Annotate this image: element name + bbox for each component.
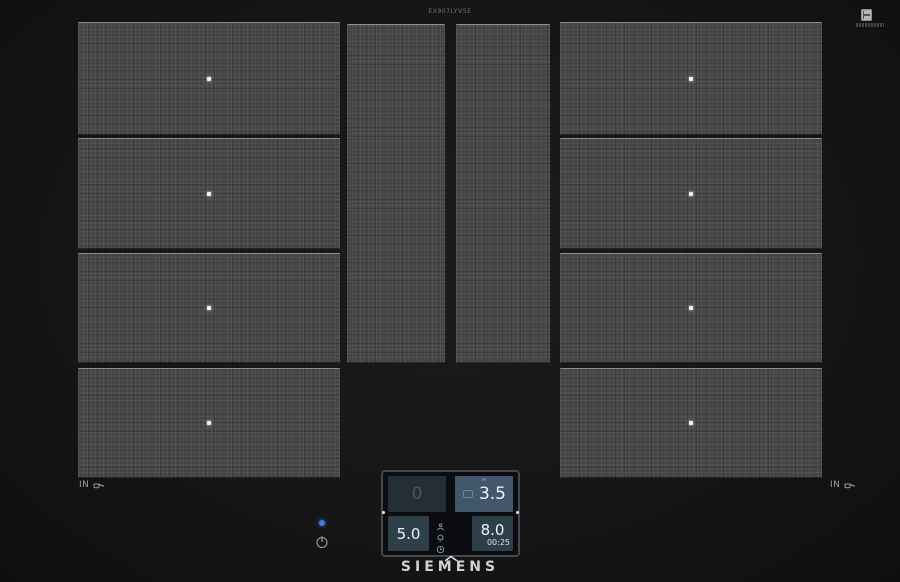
power-level-value: 0 bbox=[412, 484, 423, 504]
in-label: IN bbox=[79, 480, 89, 490]
cooking-zone-left-4 bbox=[78, 368, 340, 478]
cooking-zone-right-2 bbox=[560, 138, 822, 249]
power-level-value: 3.5 bbox=[479, 484, 506, 504]
power-level-value: 8.0 bbox=[481, 523, 505, 538]
touch-control-display: 0 3.5 5.0 bbox=[381, 470, 520, 557]
zone-power-tile-top-left[interactable]: 0 bbox=[388, 476, 446, 512]
cooking-zone-right-3 bbox=[560, 253, 822, 363]
rating-badge-icon bbox=[861, 9, 872, 21]
cooking-zone-left-1 bbox=[78, 22, 340, 135]
status-led bbox=[319, 520, 325, 526]
cooking-zone-left-2 bbox=[78, 138, 340, 249]
pan-icon bbox=[93, 475, 105, 494]
assist-icon[interactable] bbox=[436, 517, 445, 526]
timer-value: 00:25 bbox=[487, 539, 510, 547]
in-marking-right: IN bbox=[830, 475, 856, 494]
tile-notch-icon bbox=[482, 478, 486, 481]
cooking-zone-right-4 bbox=[560, 368, 822, 478]
zone-power-tile-bottom-left[interactable]: 5.0 bbox=[388, 516, 429, 551]
siemens-logo: SIEMENS bbox=[0, 559, 900, 575]
cooking-zone-middle-2 bbox=[456, 24, 550, 363]
cooking-zone-right-1 bbox=[560, 22, 822, 135]
pan-detect-icon bbox=[463, 490, 473, 498]
function-icon-stack bbox=[433, 517, 447, 548]
zone-power-tile-top-right[interactable]: 3.5 bbox=[455, 476, 513, 512]
model-fine-print: EX907LYV5E bbox=[0, 8, 900, 15]
bell-icon[interactable] bbox=[436, 528, 445, 537]
panel-edge-marker-right bbox=[516, 511, 519, 514]
in-marking-left: IN bbox=[79, 475, 105, 494]
cooking-zone-middle-1 bbox=[347, 24, 445, 363]
pan-icon bbox=[844, 475, 856, 494]
panel-edge-marker-left bbox=[382, 511, 385, 514]
cooking-zone-left-3 bbox=[78, 253, 340, 363]
zone-power-tile-bottom-right[interactable]: 8.0 00:25 bbox=[472, 516, 513, 551]
chevron-up-icon[interactable] bbox=[444, 547, 458, 554]
in-label: IN bbox=[830, 480, 840, 490]
power-level-value: 5.0 bbox=[397, 525, 421, 543]
rating-badge-caption bbox=[856, 23, 884, 27]
power-icon[interactable] bbox=[315, 534, 329, 548]
cooktop-surface: EX907LYV5E IN IN bbox=[0, 0, 900, 582]
